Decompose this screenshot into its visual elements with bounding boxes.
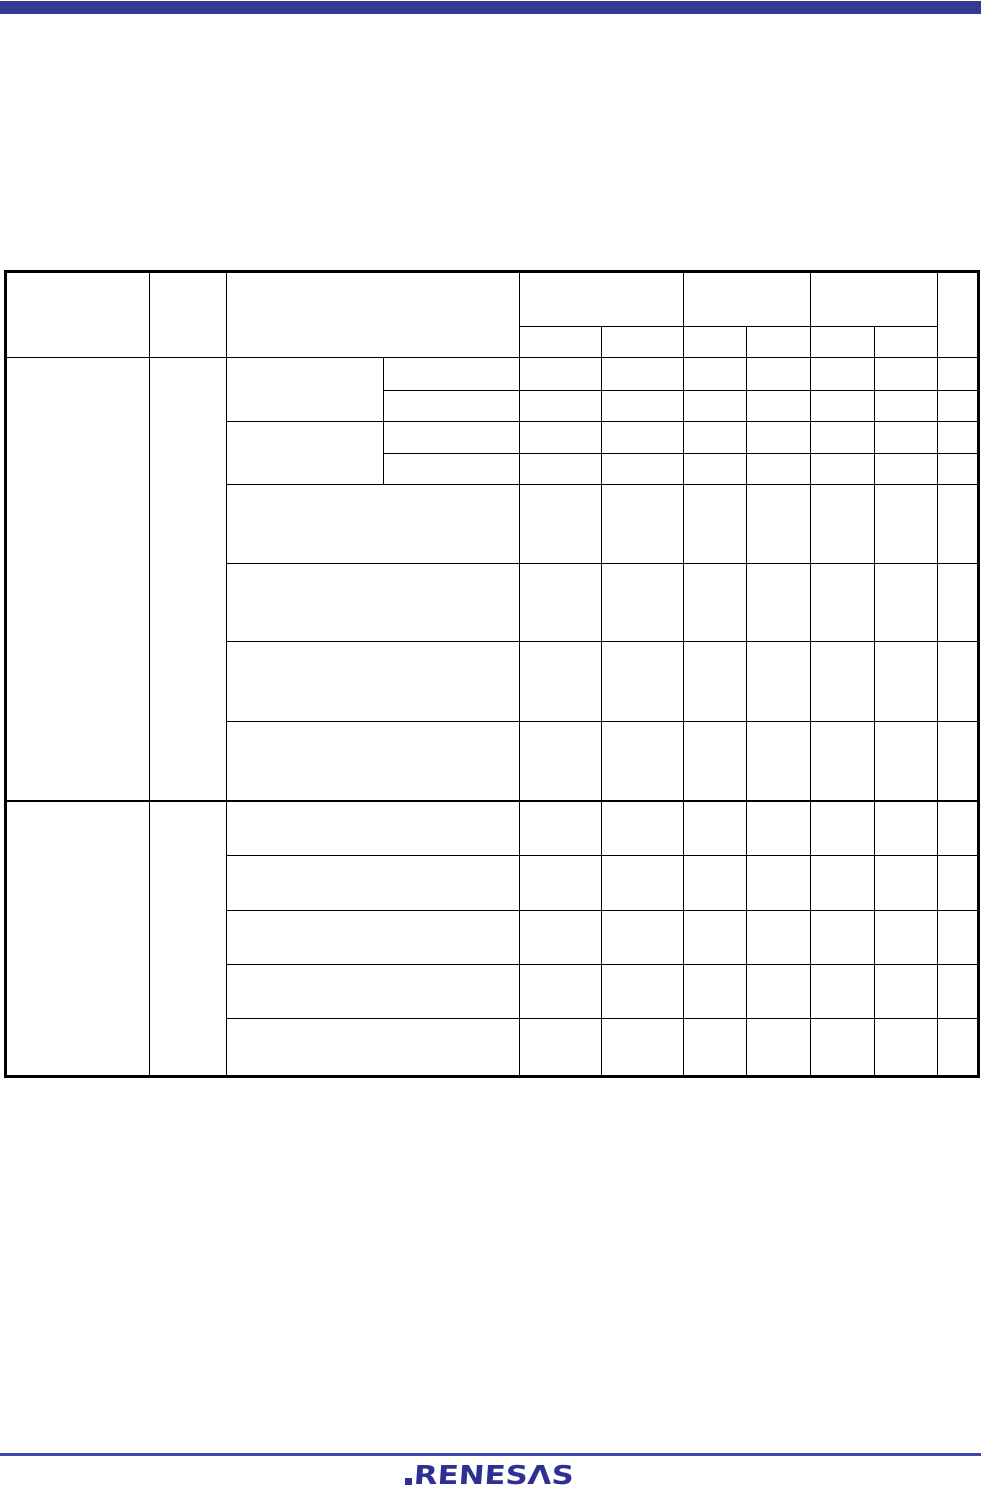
header-cell-col-b	[150, 272, 227, 358]
table-cell	[602, 391, 684, 422]
table-cell	[520, 856, 602, 911]
table-cell	[875, 485, 938, 564]
table-cell	[938, 564, 979, 642]
table-cell	[875, 1019, 938, 1077]
table-cell	[747, 454, 811, 485]
table-cell	[227, 856, 520, 911]
table-cell	[875, 856, 938, 911]
header-cell-col-c	[227, 272, 520, 358]
header-group-1	[520, 272, 684, 327]
table-cell	[684, 801, 747, 856]
table-cell	[811, 722, 875, 801]
table-cell	[811, 801, 875, 856]
table-cell	[602, 856, 684, 911]
table-cell	[684, 422, 747, 454]
table-cell	[811, 485, 875, 564]
table-cell	[747, 358, 811, 391]
table-cell	[684, 1019, 747, 1077]
table-cell	[747, 911, 811, 965]
table-cell	[747, 485, 811, 564]
header-cell-col-a	[6, 272, 150, 358]
table-cell	[875, 391, 938, 422]
table-cell	[811, 454, 875, 485]
header-subcol-3	[684, 327, 747, 358]
table-cell	[602, 801, 684, 856]
header-row-1	[6, 272, 979, 327]
table-cell	[747, 722, 811, 801]
table-cell	[602, 1019, 684, 1077]
table-cell	[811, 1019, 875, 1077]
section2-col-a-merged-cell	[6, 801, 150, 1077]
table-cell	[684, 391, 747, 422]
table-cell	[684, 965, 747, 1019]
table-cell	[520, 564, 602, 642]
section2-col-b-merged-cell	[150, 801, 227, 1077]
table-cell	[227, 422, 384, 485]
table-cell	[747, 1019, 811, 1077]
table-cell	[384, 358, 520, 391]
table-cell	[747, 422, 811, 454]
table-cell	[227, 564, 520, 642]
table-cell	[811, 856, 875, 911]
table-cell	[684, 454, 747, 485]
empty-data-table	[4, 270, 980, 1078]
table-cell	[811, 358, 875, 391]
table-row	[6, 358, 979, 391]
table-cell	[602, 564, 684, 642]
table-cell	[227, 358, 384, 422]
table-cell	[520, 965, 602, 1019]
table-cell	[520, 391, 602, 422]
top-accent-bar	[0, 1, 981, 14]
table-cell	[602, 422, 684, 454]
table-cell	[938, 485, 979, 564]
header-group-3	[811, 272, 938, 327]
table-cell	[747, 965, 811, 1019]
table-cell	[811, 564, 875, 642]
renesas-logo-graphic: RENESΛS	[402, 1459, 580, 1489]
table-cell	[384, 454, 520, 485]
table-cell	[875, 358, 938, 391]
logo-dot	[405, 1478, 412, 1485]
footer-rule	[0, 1453, 981, 1456]
table-cell	[684, 564, 747, 642]
renesas-logo: RENESΛS	[402, 1459, 580, 1489]
table-cell	[684, 856, 747, 911]
table-cell	[747, 856, 811, 911]
table-cell	[227, 965, 520, 1019]
table-cell	[747, 564, 811, 642]
table-cell	[227, 722, 520, 801]
table-cell	[602, 965, 684, 1019]
table-cell	[684, 358, 747, 391]
table-cell	[520, 642, 602, 722]
header-subcol-2	[602, 327, 684, 358]
table-cell	[684, 485, 747, 564]
table-cell	[520, 722, 602, 801]
table-cell	[602, 722, 684, 801]
table-cell	[875, 722, 938, 801]
table-cell	[227, 642, 520, 722]
table-cell	[875, 965, 938, 1019]
table-cell	[875, 422, 938, 454]
table-cell	[684, 722, 747, 801]
table-cell	[747, 391, 811, 422]
table-cell	[520, 454, 602, 485]
table-cell	[811, 911, 875, 965]
table-cell	[875, 454, 938, 485]
header-subcol-1	[520, 327, 602, 358]
table-cell	[684, 642, 747, 722]
table-cell	[520, 422, 602, 454]
table-cell	[938, 358, 979, 391]
table-cell	[938, 965, 979, 1019]
table-cell	[938, 642, 979, 722]
table-cell	[684, 911, 747, 965]
table-row	[6, 801, 979, 856]
table-cell	[938, 856, 979, 911]
table-cell	[875, 564, 938, 642]
table-cell	[602, 485, 684, 564]
table-cell	[520, 485, 602, 564]
table-cell	[227, 485, 520, 564]
table-cell	[520, 801, 602, 856]
section1-col-b-merged-cell	[150, 358, 227, 801]
header-subcol-4	[747, 327, 811, 358]
header-group-2	[684, 272, 811, 327]
table-cell	[227, 801, 520, 856]
table-cell	[811, 422, 875, 454]
table-cell	[384, 391, 520, 422]
table-cell	[811, 965, 875, 1019]
table-cell	[811, 391, 875, 422]
table-cell	[602, 642, 684, 722]
table-cell	[227, 911, 520, 965]
table-cell	[938, 422, 979, 454]
table-cell	[747, 642, 811, 722]
header-cell-last	[938, 272, 979, 358]
header-subcol-6	[875, 327, 938, 358]
table-cell	[602, 911, 684, 965]
table-cell	[520, 911, 602, 965]
table-cell	[875, 801, 938, 856]
table-cell	[938, 1019, 979, 1077]
table-cell	[811, 642, 875, 722]
table-cell	[938, 911, 979, 965]
table-cell	[747, 801, 811, 856]
table-cell	[938, 722, 979, 801]
table-cell	[520, 358, 602, 391]
table-cell	[602, 454, 684, 485]
section1-col-a-merged-cell	[6, 358, 150, 801]
table-cell	[938, 801, 979, 856]
table-cell	[938, 454, 979, 485]
table-cell	[875, 911, 938, 965]
table-cell	[384, 422, 520, 454]
table-cell	[227, 1019, 520, 1077]
header-subcol-5	[811, 327, 875, 358]
table-cell	[520, 1019, 602, 1077]
table-cell	[875, 642, 938, 722]
table-cell	[602, 358, 684, 391]
table-cell	[938, 391, 979, 422]
logo-wordmark-text: RENESΛS	[413, 1461, 575, 1489]
